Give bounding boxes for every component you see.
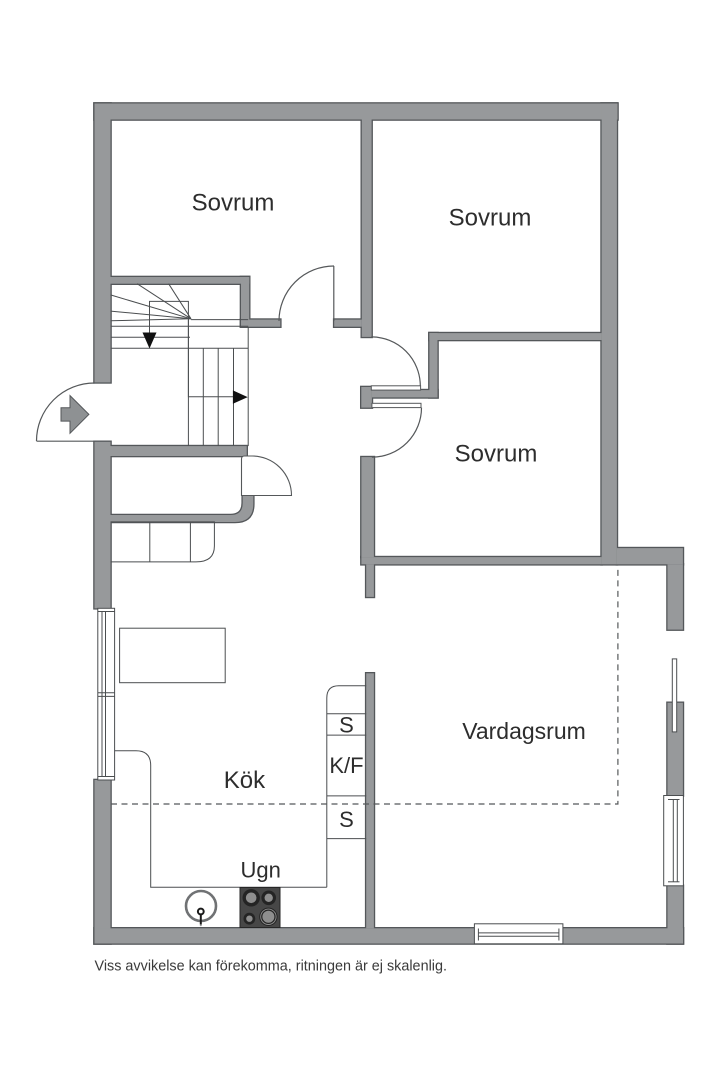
svg-text:Vardagsrum: Vardagsrum xyxy=(462,718,586,744)
svg-text:S: S xyxy=(339,713,354,738)
svg-text:Sovrum: Sovrum xyxy=(455,441,538,468)
svg-text:Ugn: Ugn xyxy=(241,858,281,883)
svg-text:S: S xyxy=(339,807,354,832)
svg-text:Sovrum: Sovrum xyxy=(192,190,275,217)
svg-text:K/F: K/F xyxy=(329,753,363,778)
svg-text:Sovrum: Sovrum xyxy=(449,205,532,232)
svg-text:Kök: Kök xyxy=(224,767,266,794)
svg-text:Viss avvikelse kan förekomma,: Viss avvikelse kan förekomma, ritningen … xyxy=(95,959,447,975)
